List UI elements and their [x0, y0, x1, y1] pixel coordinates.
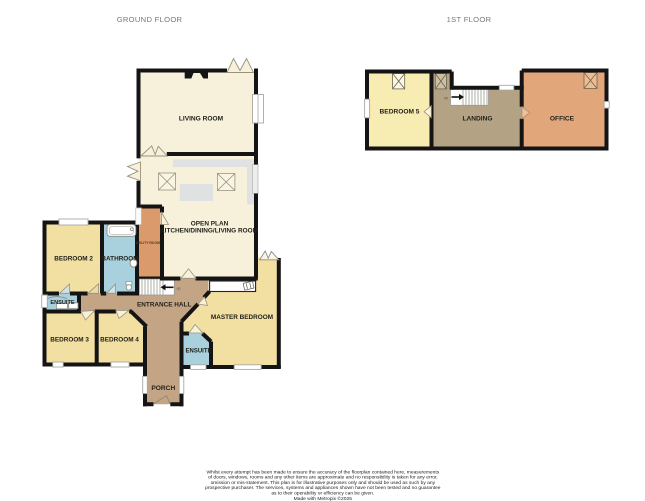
svg-text:BEDROOM 2: BEDROOM 2 — [54, 255, 93, 262]
svg-text:as to their operability or eff: as to their operability or efficiency ca… — [271, 491, 374, 497]
svg-text:BEDROOM 3: BEDROOM 3 — [50, 336, 89, 343]
svg-text:BEDROOM 4: BEDROOM 4 — [100, 336, 139, 343]
svg-text:GROUND FLOOR: GROUND FLOOR — [117, 15, 183, 24]
svg-text:ENTRANCE HALL: ENTRANCE HALL — [137, 302, 191, 309]
svg-text:up: up — [444, 96, 448, 100]
svg-text:LANDING: LANDING — [462, 116, 492, 123]
svg-text:up: up — [177, 287, 181, 291]
svg-text:PORCH: PORCH — [151, 385, 175, 392]
svg-text:BEDROOM 5: BEDROOM 5 — [380, 109, 420, 116]
svg-text:MASTER BEDROOM: MASTER BEDROOM — [211, 314, 273, 321]
svg-text:of doors, windows, rooms and a: of doors, windows, rooms and any other i… — [208, 475, 438, 481]
svg-text:LIVING ROOM: LIVING ROOM — [179, 115, 224, 122]
svg-text:prospective purchaser. The ser: prospective purchaser. The services, sys… — [205, 485, 441, 491]
svg-text:ENSUITE: ENSUITE — [185, 348, 211, 354]
svg-text:KITCHEN/DINING/LIVING ROOM: KITCHEN/DINING/LIVING ROOM — [160, 228, 258, 235]
svg-text:ENSUITE: ENSUITE — [50, 300, 75, 306]
svg-text:1ST FLOOR: 1ST FLOOR — [447, 15, 492, 24]
svg-text:Whilst every attempt has been: Whilst every attempt has been made to en… — [206, 469, 439, 475]
svg-text:OPEN PLAN: OPEN PLAN — [191, 220, 229, 227]
svg-text:UTILITY ROOM: UTILITY ROOM — [136, 241, 160, 245]
svg-text:omission or mis-statement. Thi: omission or mis-statement. This plan is … — [211, 480, 436, 486]
svg-text:BATHROOM: BATHROOM — [101, 255, 138, 262]
svg-text:OFFICE: OFFICE — [550, 116, 575, 123]
